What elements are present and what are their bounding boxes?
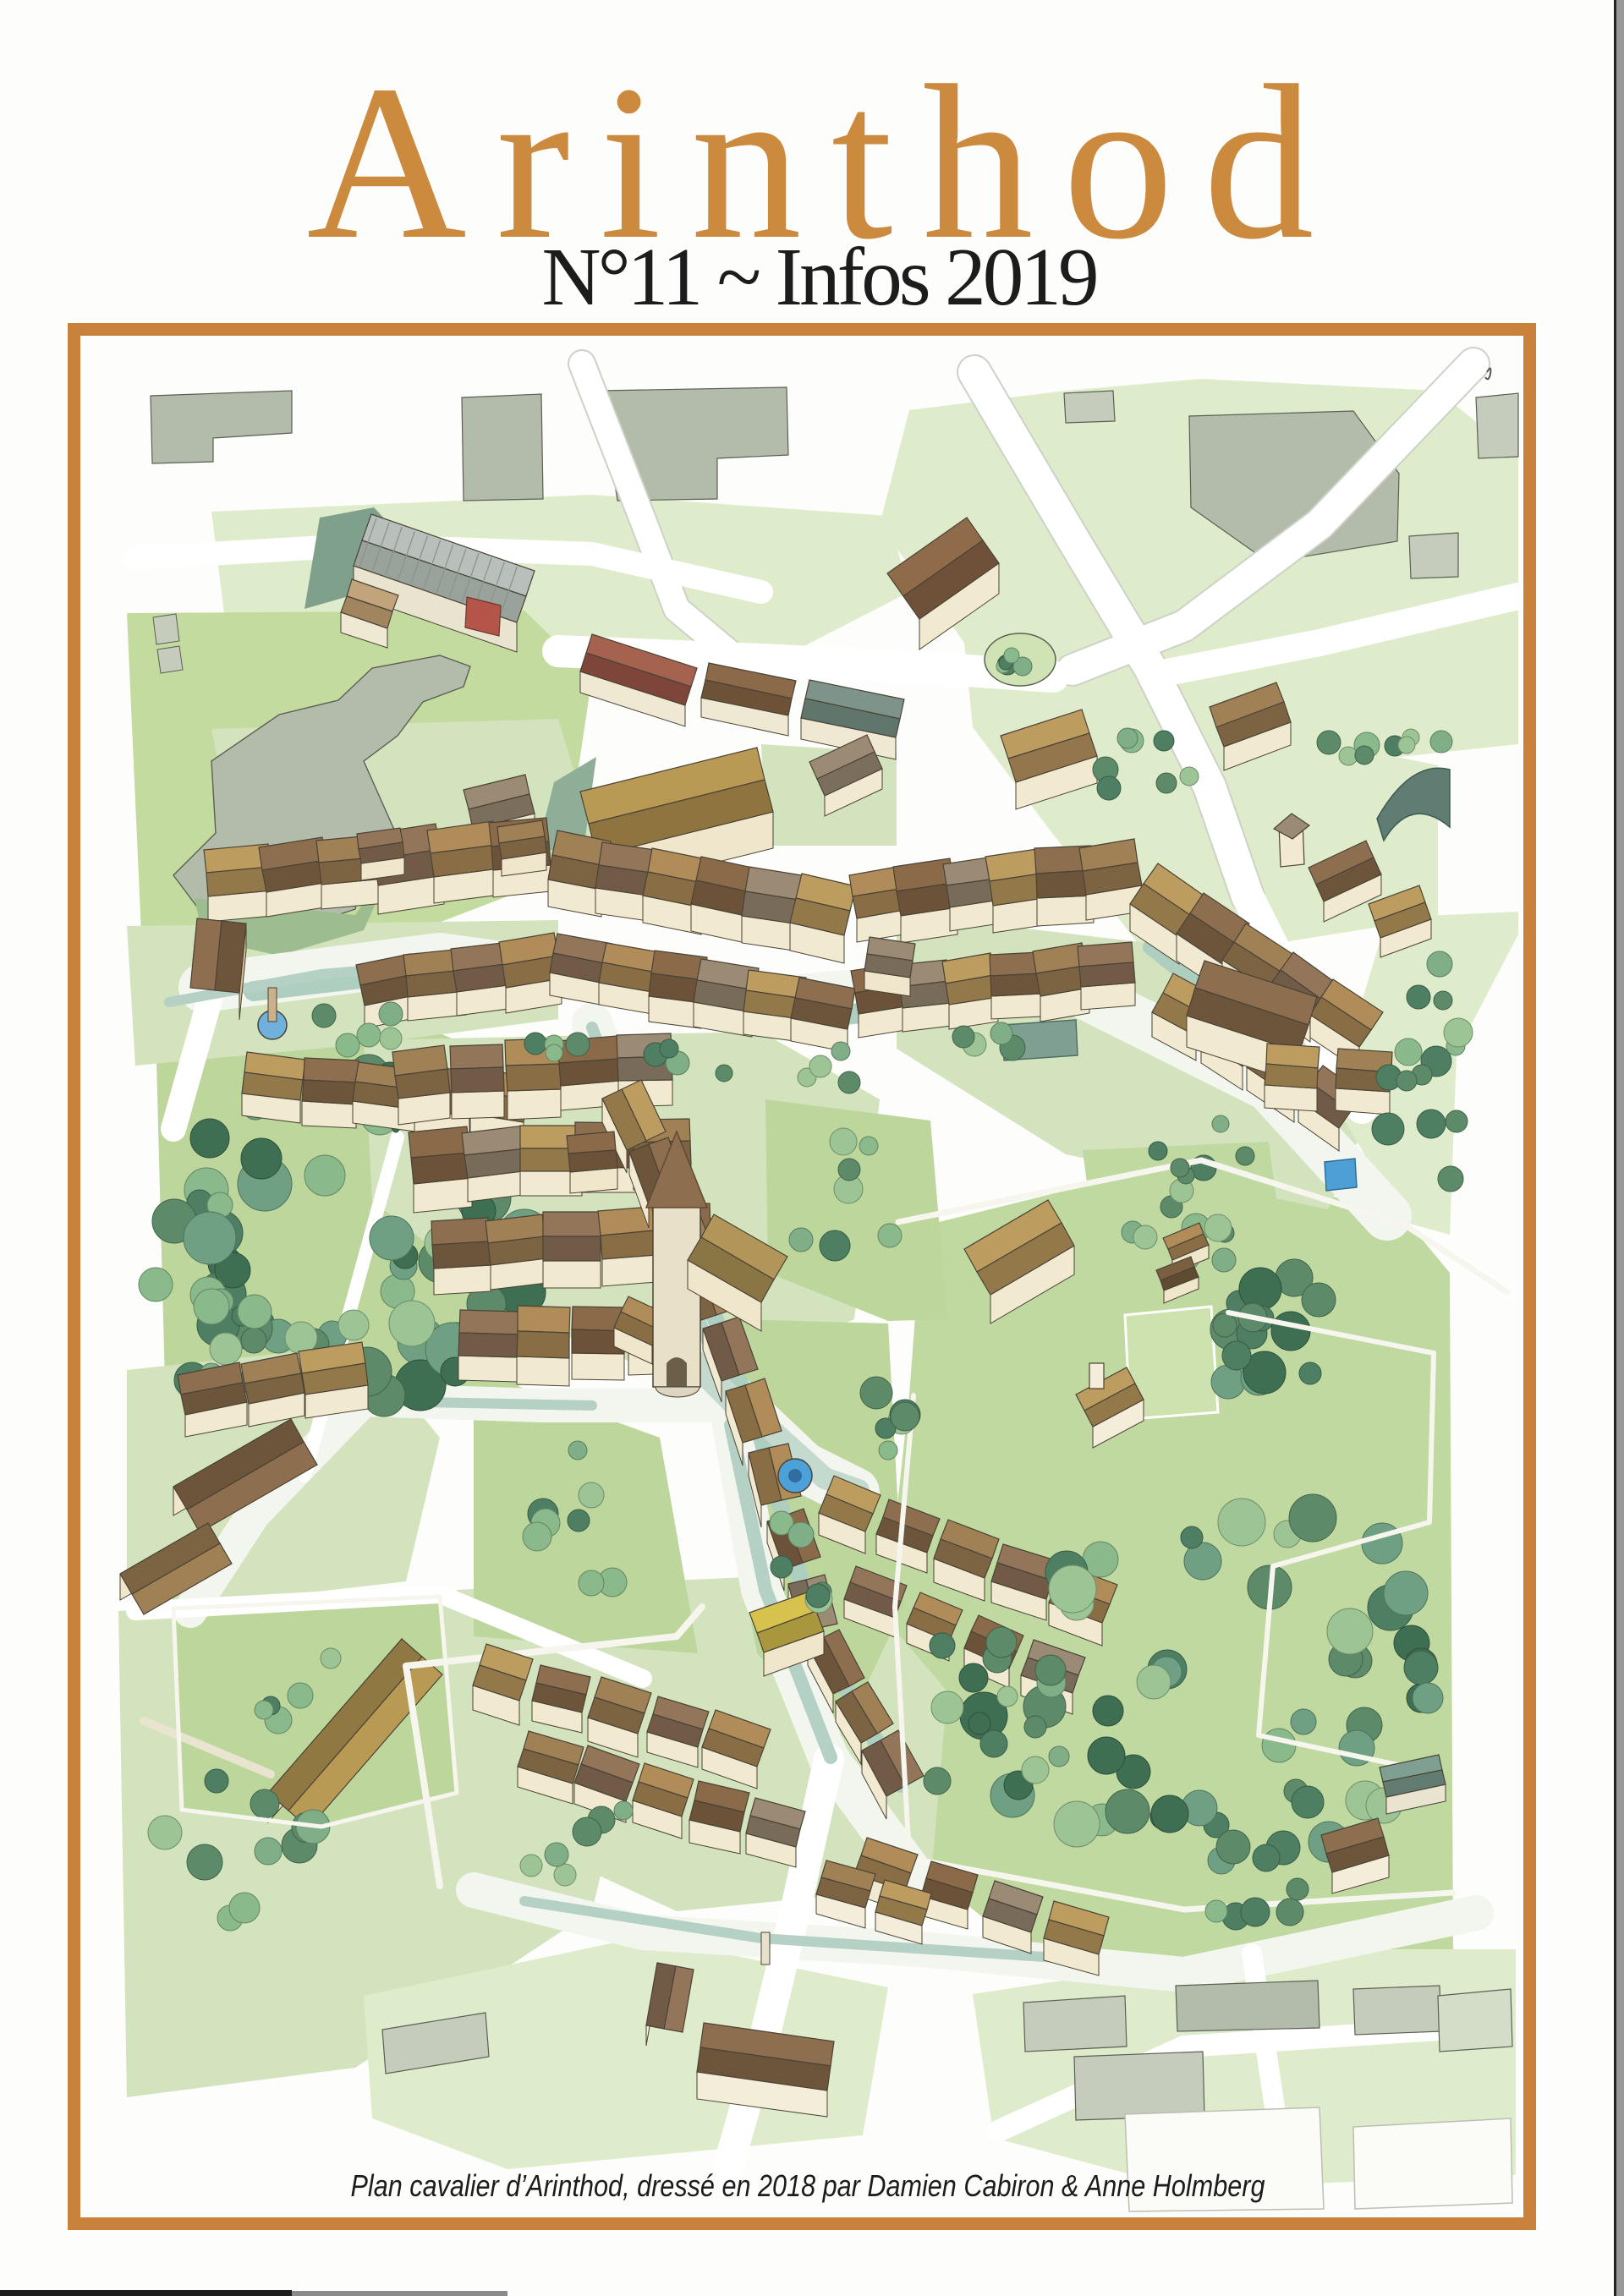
svg-text:N°11 ~ Infos 2019: N°11 ~ Infos 2019 [542, 232, 1100, 322]
svg-text:Plan cavalier d’Arinthod, dres: Plan cavalier d’Arinthod, dressé en 2018… [351, 2168, 1265, 2203]
